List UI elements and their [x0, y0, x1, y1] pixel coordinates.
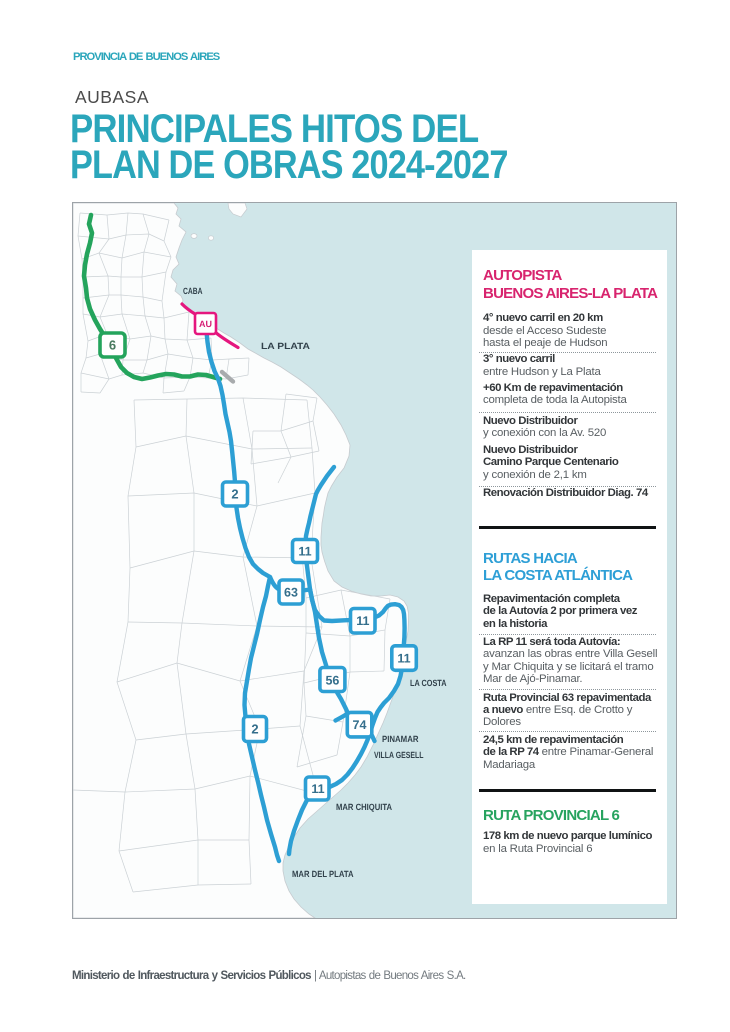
svg-text:11: 11: [311, 782, 324, 796]
svg-text:74: 74: [353, 718, 367, 732]
svg-text:CABA: CABA: [183, 286, 203, 296]
svg-text:63: 63: [284, 585, 298, 599]
svg-text:56: 56: [325, 674, 339, 688]
svg-text:11: 11: [298, 545, 311, 559]
svg-text:2: 2: [231, 487, 238, 502]
svg-text:6: 6: [109, 338, 116, 353]
svg-text:LA COSTA: LA COSTA: [410, 678, 447, 688]
svg-text:2: 2: [251, 722, 258, 737]
svg-text:MAR DEL PLATA: MAR DEL PLATA: [292, 869, 354, 879]
svg-text:PINAMAR: PINAMAR: [382, 734, 419, 744]
svg-text:VILLA GESELL: VILLA GESELL: [374, 750, 424, 760]
svg-text:AU: AU: [199, 319, 212, 329]
svg-text:11: 11: [356, 614, 369, 628]
svg-text:MAR CHIQUITA: MAR CHIQUITA: [336, 802, 392, 812]
svg-text:LA PLATA: LA PLATA: [261, 341, 311, 351]
svg-text:11: 11: [397, 651, 410, 665]
